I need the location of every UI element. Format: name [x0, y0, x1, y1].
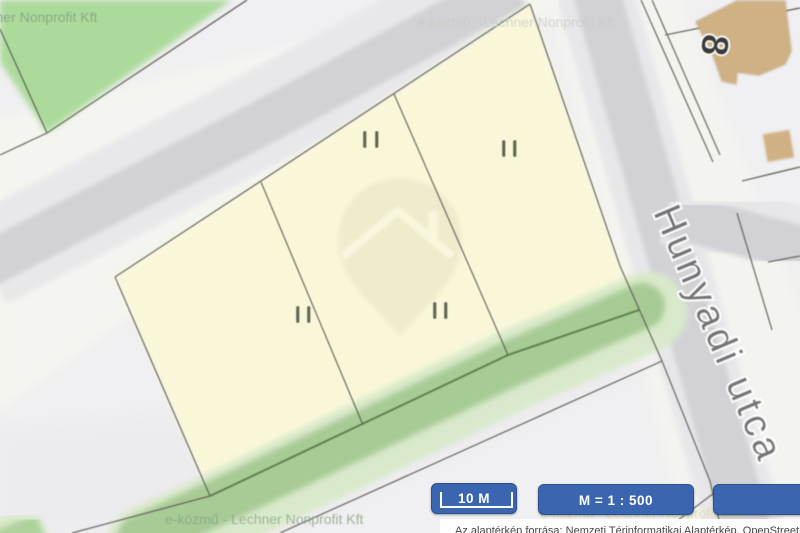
svg-text:Az alaptérkép forrása: Nemzeti: Az alaptérkép forrása: Nemzeti Térinform… [455, 525, 800, 533]
svg-text:e-közmű - Lechner Nonprofit Kf: e-közmű - Lechner Nonprofit Kft [417, 14, 616, 30]
svg-text:e-közmű - Lechner Nonprofit Kf: e-közmű - Lechner Nonprofit Kft [0, 9, 98, 25]
svg-text:e-közmű - Lechner Nonprofit Kf: e-közmű - Lechner Nonprofit Kft [165, 511, 364, 527]
